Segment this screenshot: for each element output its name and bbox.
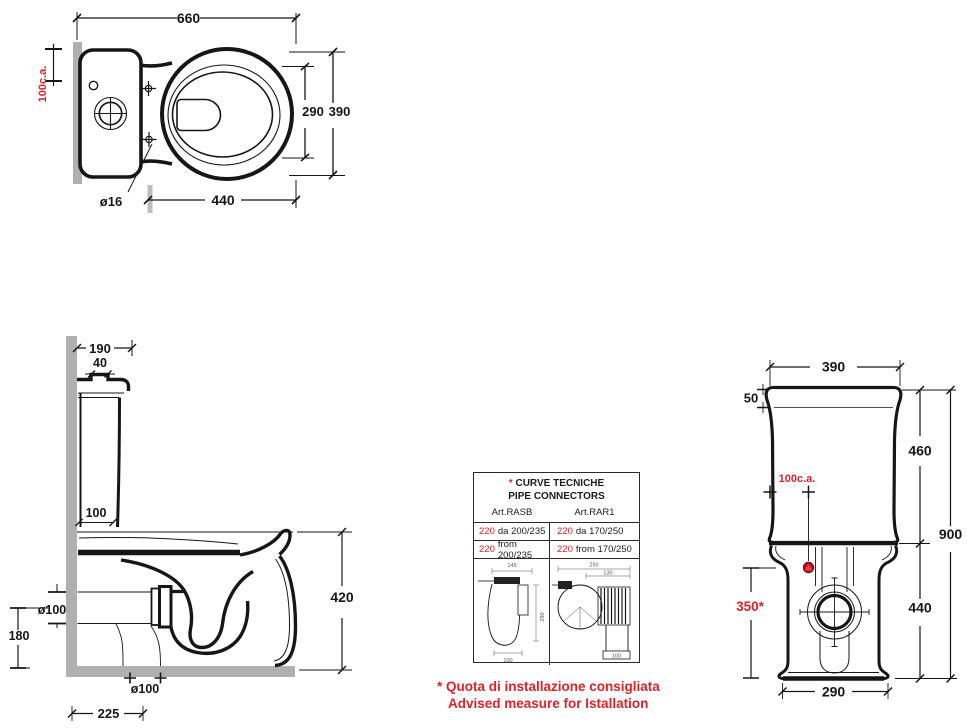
rar1-dim-bottom: 100 — [612, 654, 621, 660]
title-asterisk: * — [509, 478, 513, 489]
article-row: Art.RASB Art.RAR1 — [474, 507, 639, 522]
rar1-dim-inner: 130 — [603, 571, 612, 577]
dim-50-label: 50 — [744, 391, 758, 406]
cell-text: da 200/235 — [498, 526, 546, 537]
dim-290-label: 290 — [302, 104, 324, 119]
rasb-dim-top: 145 — [507, 563, 516, 569]
side-view-drawing: 190 40 100 420 ø100 180 ø100 225 — [0, 330, 370, 728]
cell-text: from 200/235 — [498, 539, 549, 561]
wall-strip — [66, 336, 77, 666]
cell-text: from 170/250 — [576, 544, 632, 555]
dim-o16-label: ø16 — [100, 194, 122, 209]
cistern-front — [766, 387, 901, 542]
dim-o100-floor-label: ø100 — [131, 682, 160, 696]
footnote-english: Advised measure for Istallation — [448, 695, 697, 712]
top-view-drawing: 660 290 390 440 ø16 100c.a. — [0, 0, 370, 230]
pipe-connectors-table: * CURVE TECNICHE PIPE CONNECTORS Art.RAS… — [473, 472, 640, 663]
table-row: 220 from 200/235 220 from 170/250 — [474, 540, 639, 558]
hinge-holes — [141, 81, 157, 147]
connector-rar1-cell: 250 130 100 — [550, 559, 639, 665]
dim-390-label: 390 — [822, 359, 846, 375]
dim-100 — [76, 519, 117, 526]
bowl-front — [770, 546, 896, 679]
floor-strip — [66, 666, 295, 677]
cell-value: 220 — [557, 526, 573, 537]
connector-drawings-row: 145 290 100 — [474, 558, 639, 665]
dim-290-label: 290 — [822, 684, 846, 700]
flush-button — [94, 97, 127, 130]
rasb-dim-side: 290 — [540, 612, 546, 621]
table-row: 220 da 200/235 220 da 170/250 — [474, 522, 639, 540]
connector-rasb-cell: 145 290 100 — [474, 559, 550, 665]
dim-420-label: 420 — [330, 589, 354, 605]
technical-sheet: 660 290 390 440 ø16 100c.a. — [0, 0, 977, 728]
dim-o100-wall-label: ø100 — [38, 603, 67, 617]
outlet-pipe — [78, 587, 172, 667]
rar1-dim-top: 250 — [589, 563, 598, 569]
dim-440-label: 440 — [908, 600, 932, 616]
article-right: Art.RAR1 — [550, 507, 639, 518]
bowl-section — [77, 530, 296, 665]
installation-footnote: * Quota di installazione consigliata Adv… — [437, 678, 697, 712]
dim-350 — [743, 568, 776, 678]
footnote-italian: * Quota di installazione consigliata — [437, 678, 697, 695]
dim-225-label: 225 — [98, 706, 120, 721]
cell-value: 220 — [557, 544, 573, 555]
dim-180-label: 180 — [9, 629, 30, 643]
cell-text: da 170/250 — [576, 526, 624, 537]
dim-390-label: 390 — [329, 104, 351, 119]
dim-100ca-label: 100c.a. — [37, 66, 49, 103]
dim-460-label: 460 — [908, 443, 932, 459]
dim-660-label: 660 — [177, 10, 201, 26]
connector-rar1-drawing: 250 130 100 — [550, 559, 639, 664]
cell-value: 220 — [479, 544, 495, 555]
front-view-drawing: 390 50 100c.a. 460 900 440 350* 290 — [730, 340, 977, 728]
dim-100ca-label: 100c.a. — [779, 473, 816, 485]
rasb-dim-bottom: 100 — [503, 658, 512, 664]
neck-bottom — [140, 161, 172, 164]
article-left: Art.RASB — [474, 507, 550, 518]
dim-190-label: 190 — [89, 341, 111, 356]
cell-value: 220 — [479, 526, 495, 537]
cistern-section — [77, 375, 129, 528]
title-line2: PIPE CONNECTORS — [474, 491, 639, 504]
dim-100-label: 100 — [86, 506, 107, 520]
connector-rasb-drawing: 145 290 100 — [474, 559, 548, 664]
neck-top — [140, 63, 172, 66]
dim-900-label: 900 — [939, 526, 963, 542]
title-line1: CURVE TECNICHE — [515, 478, 604, 489]
dim-350-label: 350* — [736, 599, 765, 614]
dim-40-label: 40 — [93, 356, 107, 370]
table-title: * CURVE TECNICHE PIPE CONNECTORS — [474, 473, 639, 503]
dim-440-label: 440 — [211, 192, 235, 208]
